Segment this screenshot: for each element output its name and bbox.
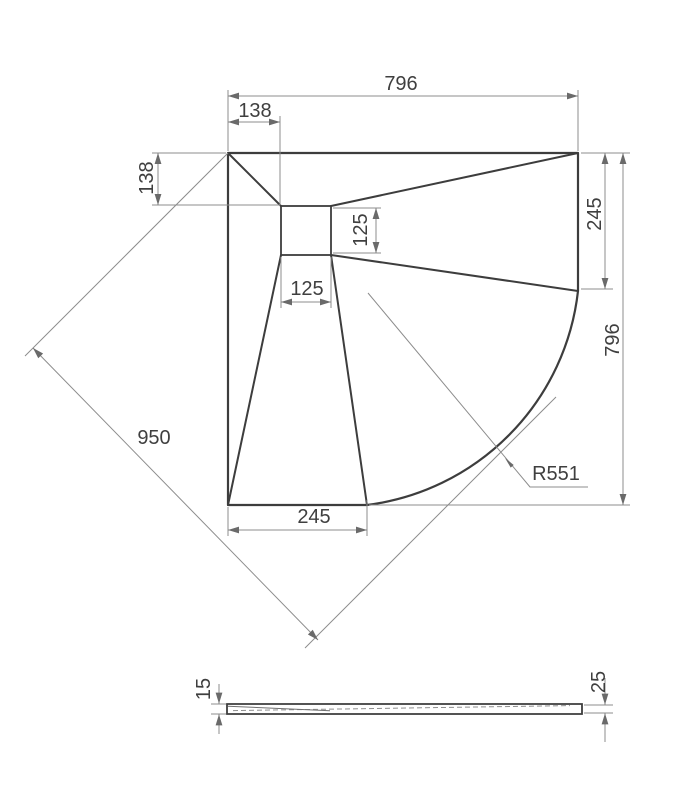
dim-left-offset: 138 bbox=[136, 153, 280, 205]
dim-label-section-min: 15 bbox=[193, 678, 215, 700]
dim-label-right-height: 796 bbox=[602, 323, 624, 356]
dim-right-edge: 245 bbox=[581, 153, 613, 289]
drain-square bbox=[281, 206, 331, 255]
dim-drain-depth: 125 bbox=[333, 208, 381, 253]
dim-label-bottom-edge: 245 bbox=[297, 506, 330, 528]
dim-section-min: 15 bbox=[193, 678, 226, 734]
dim-label-drain-width: 125 bbox=[290, 278, 323, 300]
technical-drawing: 796 138 138 125 125 245 796 bbox=[0, 0, 674, 800]
dim-label-top-width: 796 bbox=[384, 73, 417, 95]
dim-label-radius: R551 bbox=[532, 463, 580, 485]
dim-label-top-offset: 138 bbox=[238, 100, 271, 122]
dim-diagonal: 950 bbox=[25, 153, 556, 648]
dim-drain-width: 125 bbox=[281, 257, 331, 308]
dim-label-diagonal: 950 bbox=[137, 427, 170, 449]
dim-label-section-edge: 25 bbox=[588, 671, 610, 693]
section-slab bbox=[227, 704, 582, 714]
dim-label-drain-depth: 125 bbox=[350, 213, 372, 246]
drawing-canvas: 796 138 138 125 125 245 796 bbox=[0, 0, 674, 800]
dim-radius: R551 bbox=[368, 293, 588, 487]
dim-label-right-edge: 245 bbox=[584, 197, 606, 230]
dim-section-edge: 25 bbox=[584, 671, 613, 742]
dim-label-left-offset: 138 bbox=[136, 161, 158, 194]
